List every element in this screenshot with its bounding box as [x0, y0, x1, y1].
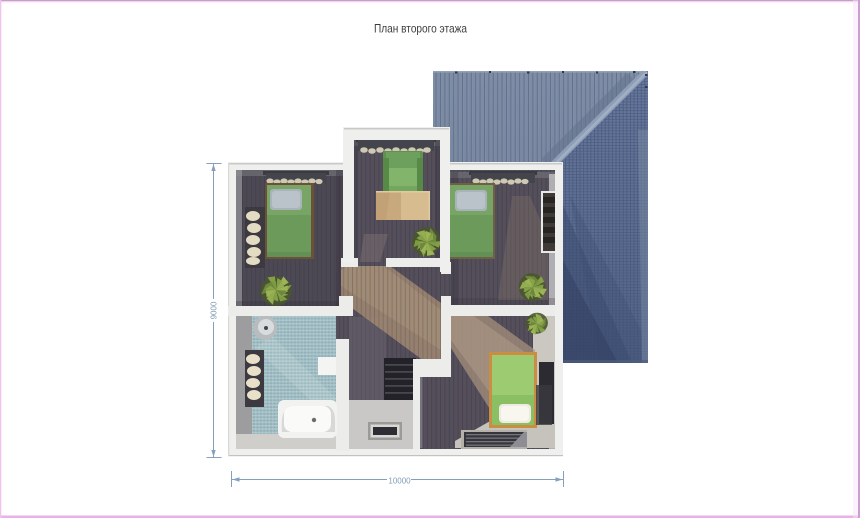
svg-text:10000: 10000	[388, 477, 411, 486]
svg-text:9000: 9000	[210, 301, 219, 319]
svg-text:План второго этажа: План второго этажа	[374, 22, 467, 36]
